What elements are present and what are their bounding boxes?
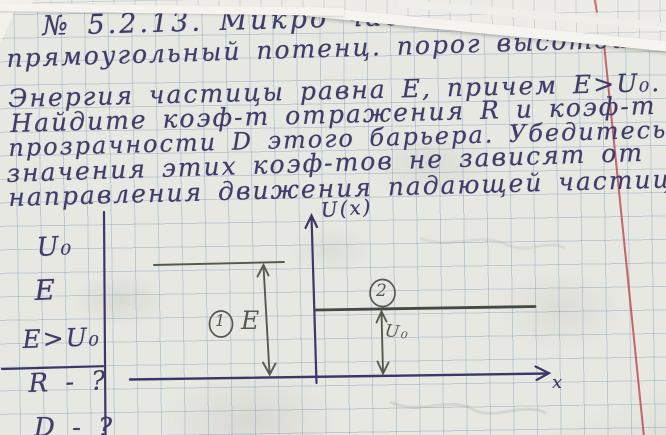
potential-step-line — [316, 307, 535, 311]
energy-level-line — [154, 262, 284, 265]
ghost-writing-mark — [420, 238, 565, 248]
notebook-photo: № 5.2.13. Микро частица налетает на прям… — [0, 0, 666, 435]
region-2-number: 2 — [376, 282, 389, 301]
step-height-arrow-shaft — [382, 313, 384, 372]
energy-label: E — [241, 307, 261, 335]
energy-arrow-shaft — [264, 266, 270, 373]
step-height-label: U₀ — [384, 322, 411, 344]
y-axis — [312, 216, 317, 383]
notebook-page: № 5.2.13. Микро частица налетает на прям… — [0, 0, 666, 435]
background-sheet-margin-line — [591, 0, 598, 13]
region-1-number: 1 — [215, 312, 227, 330]
ghost-writing-mark — [390, 402, 546, 413]
x-axis — [130, 374, 548, 380]
y-axis-label: U(x) — [320, 195, 373, 221]
given-divider-line — [104, 212, 106, 435]
x-axis-label: x — [552, 373, 564, 393]
given-underline — [2, 366, 103, 369]
